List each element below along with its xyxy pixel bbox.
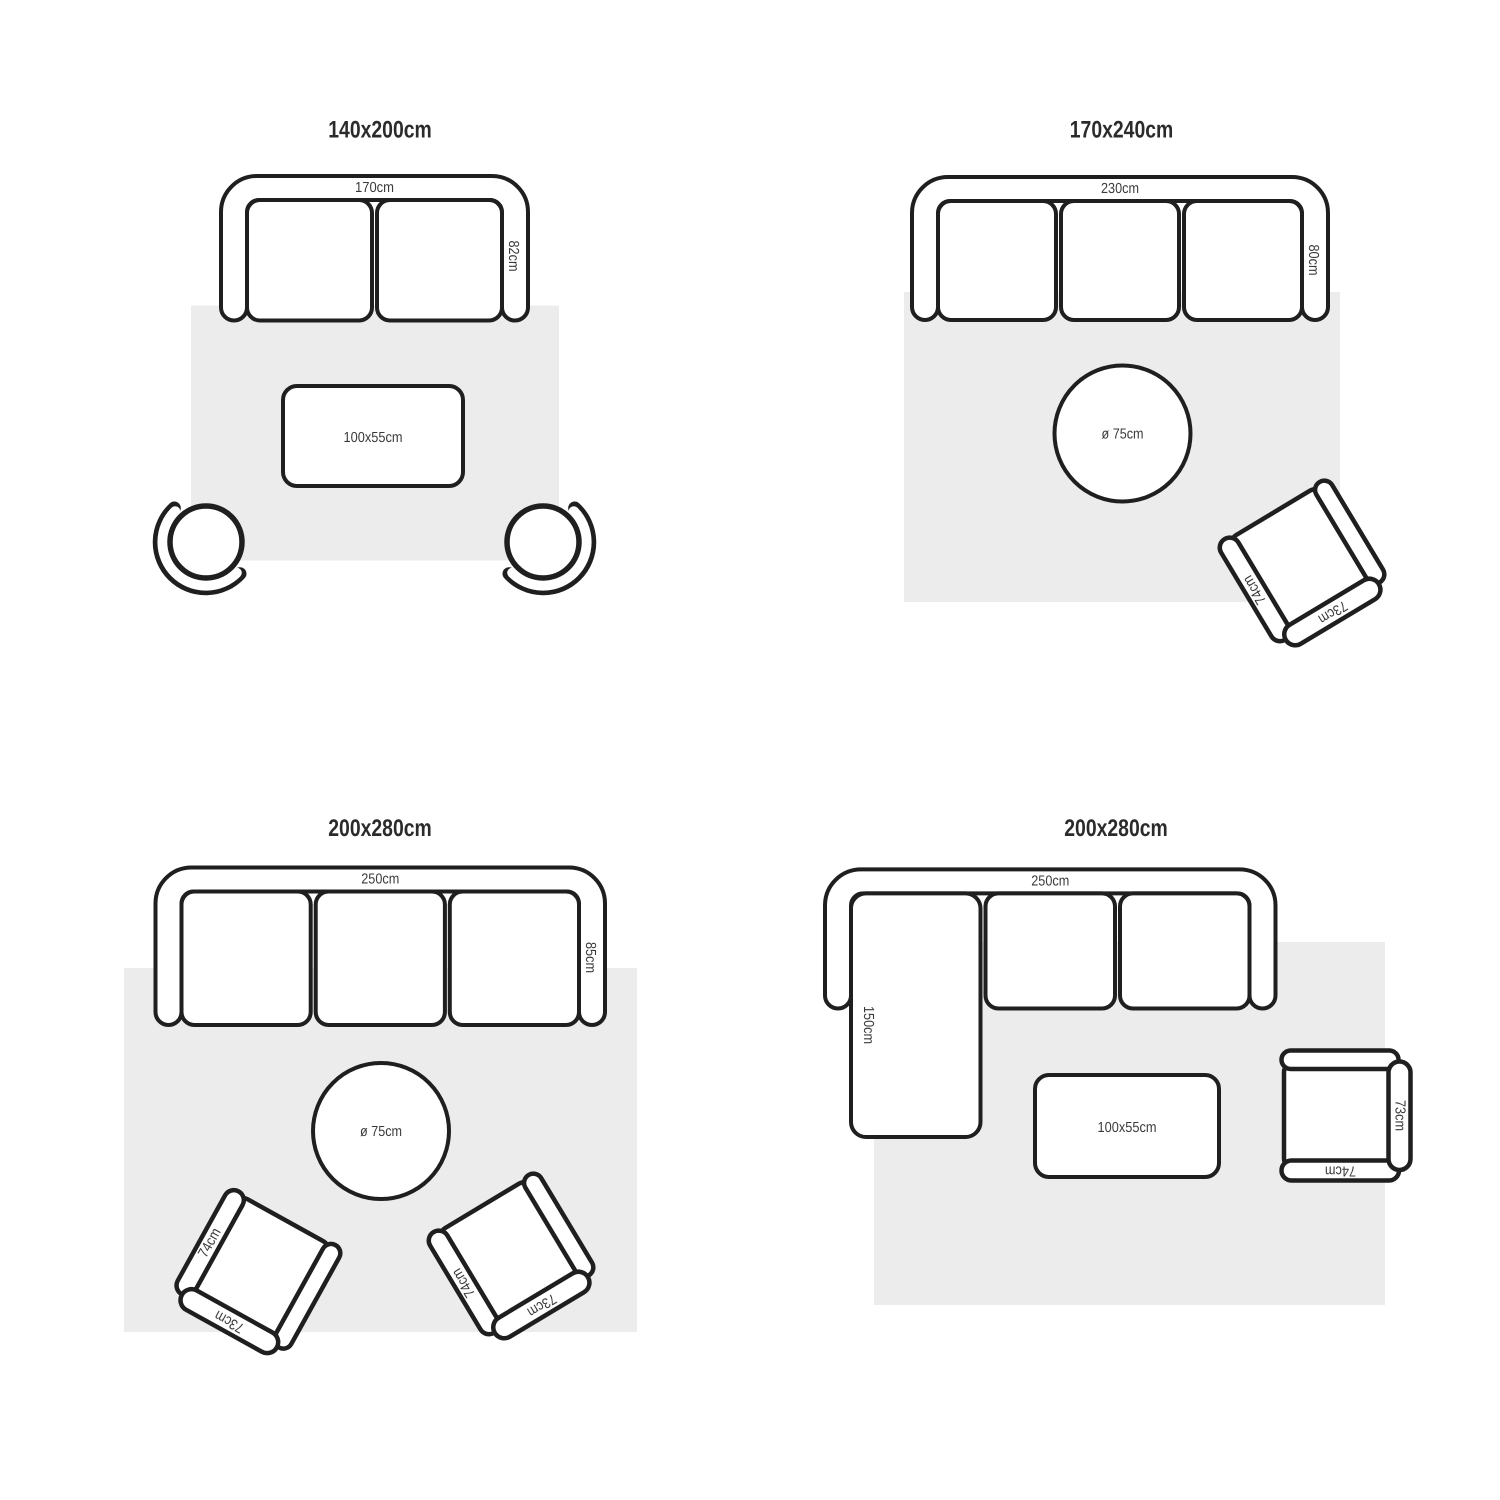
svg-text:ø 75cm: ø 75cm: [360, 1124, 402, 1140]
svg-text:85cm: 85cm: [582, 942, 598, 973]
svg-text:170x240cm: 170x240cm: [1070, 117, 1174, 144]
svg-text:74cm: 74cm: [1325, 1163, 1356, 1179]
svg-text:170cm: 170cm: [355, 180, 394, 196]
svg-text:80cm: 80cm: [1305, 245, 1321, 276]
svg-text:100x55cm: 100x55cm: [1098, 1120, 1157, 1136]
svg-text:200x280cm: 200x280cm: [1064, 815, 1168, 842]
svg-text:140x200cm: 140x200cm: [328, 117, 432, 144]
svg-text:150cm: 150cm: [860, 1006, 876, 1044]
svg-text:82cm: 82cm: [505, 241, 521, 272]
svg-text:230cm: 230cm: [1101, 181, 1139, 197]
svg-text:73cm: 73cm: [1392, 1100, 1408, 1131]
svg-text:250cm: 250cm: [361, 872, 399, 888]
svg-text:ø 75cm: ø 75cm: [1102, 427, 1144, 443]
svg-text:200x280cm: 200x280cm: [328, 815, 432, 842]
svg-text:100x55cm: 100x55cm: [344, 430, 403, 446]
svg-text:250cm: 250cm: [1031, 873, 1069, 889]
